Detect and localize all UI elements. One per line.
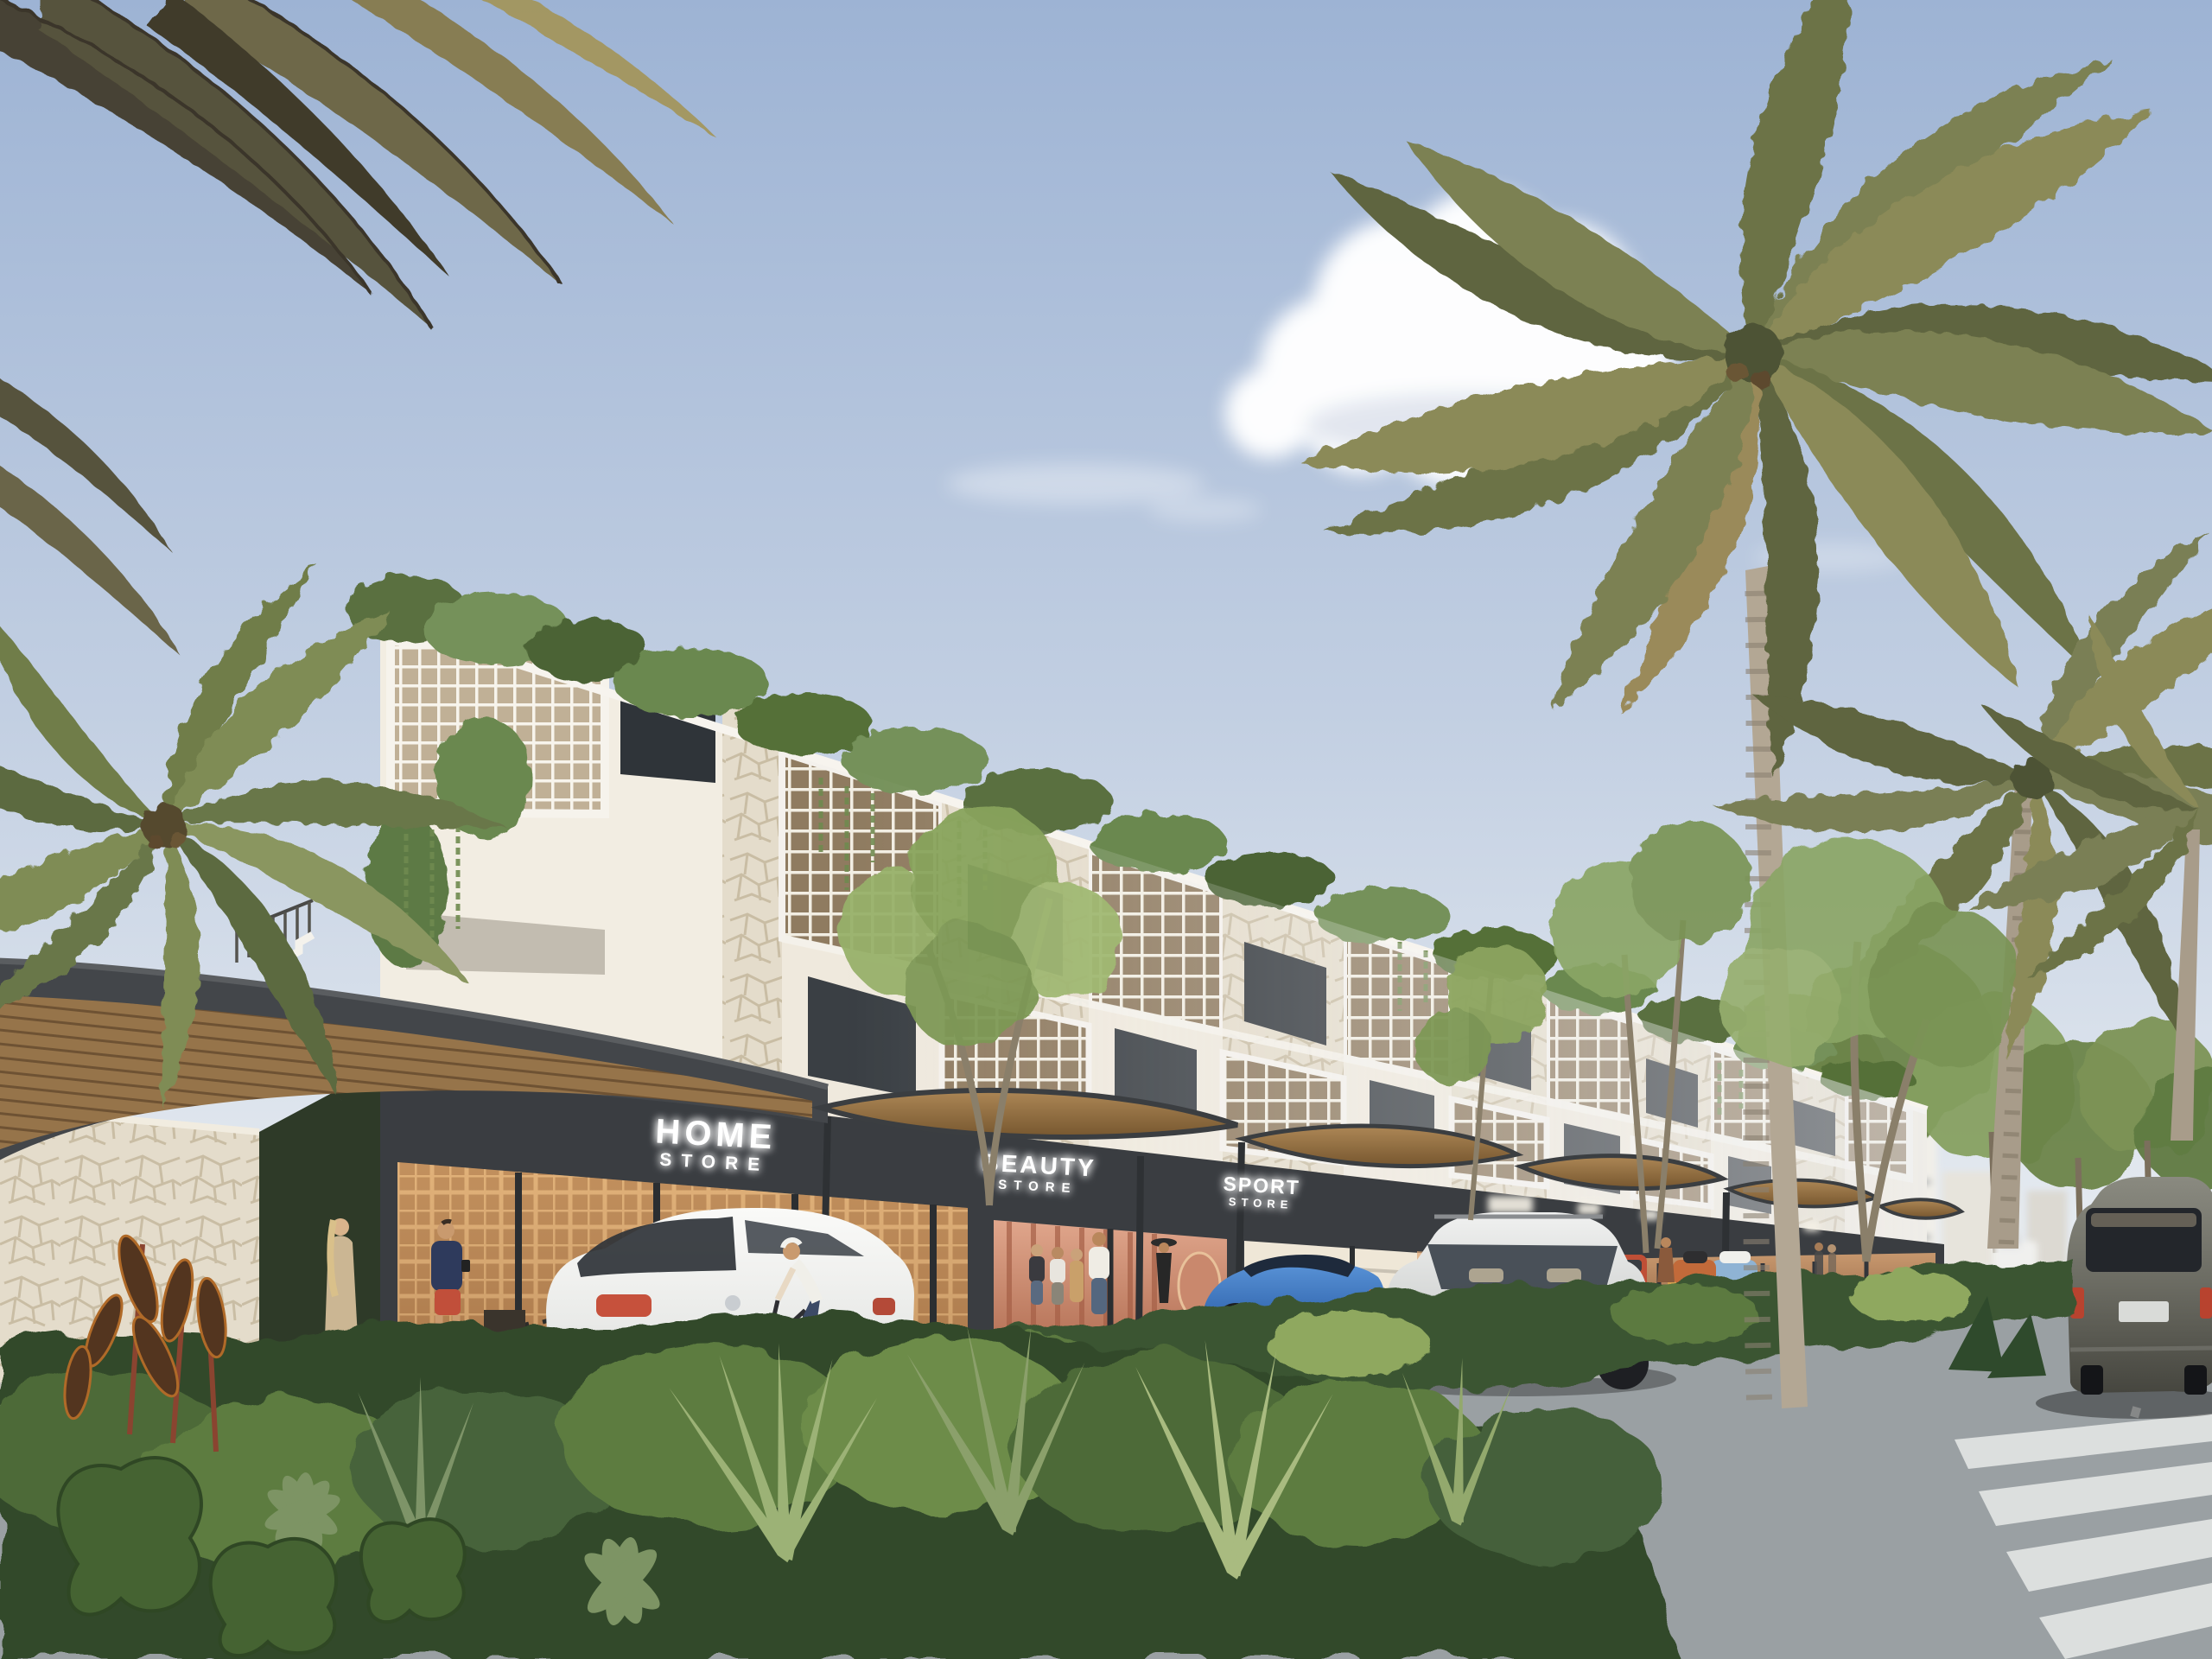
scene-canvas: HOME STORE BEAUTY STORE SPORT STORE xyxy=(0,0,2212,1659)
rendered-scene: HOME STORE BEAUTY STORE SPORT STORE xyxy=(0,0,2212,1659)
vw-badge xyxy=(725,1295,741,1311)
taillight-right xyxy=(2200,1287,2212,1319)
sign-home-store: HOME STORE xyxy=(653,1112,777,1175)
taillight-right xyxy=(873,1298,895,1315)
license-plate xyxy=(2119,1301,2169,1322)
phone xyxy=(461,1260,470,1272)
cloud-wisp xyxy=(946,463,1205,505)
sign-sport-store: SPORT STORE xyxy=(1222,1173,1300,1212)
taillight-left xyxy=(596,1294,652,1317)
shoppers-beauty xyxy=(1029,1244,1084,1305)
